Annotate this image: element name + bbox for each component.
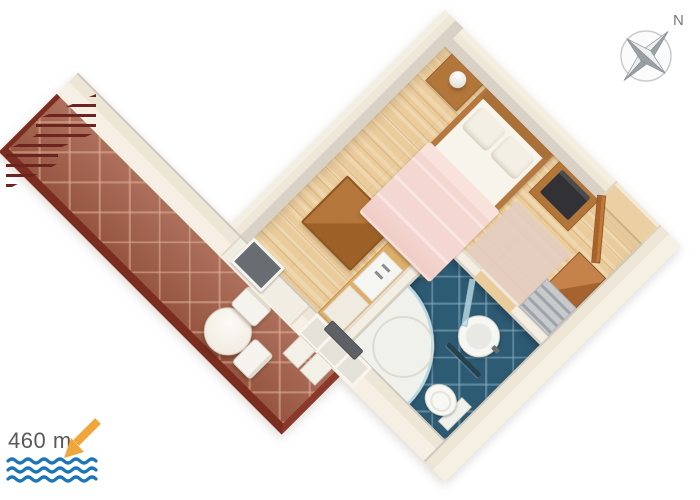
floor-plan-canvas: N 460 m	[0, 0, 700, 500]
distance-arrow-icon	[62, 416, 102, 460]
sea-waves-icon	[6, 456, 98, 484]
compass-rose-icon: N	[598, 6, 694, 90]
compass-rose: N	[598, 6, 694, 90]
compass-north-label: N	[673, 12, 684, 29]
